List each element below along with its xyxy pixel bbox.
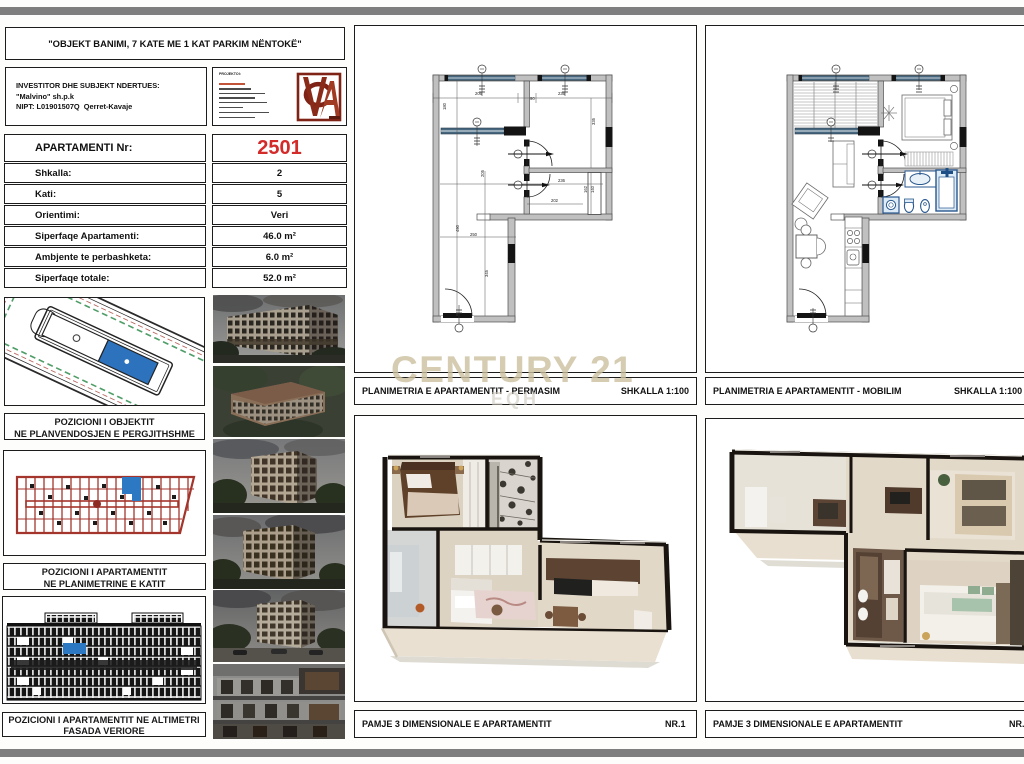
- svg-text:335: 335: [591, 117, 596, 125]
- svg-text:490: 490: [455, 224, 460, 232]
- svg-text:202: 202: [551, 198, 559, 203]
- svg-text:206: 206: [475, 91, 483, 96]
- svg-text:250: 250: [470, 232, 478, 237]
- svg-text:236: 236: [558, 178, 566, 183]
- svg-text:180: 180: [442, 102, 447, 110]
- svg-text:90: 90: [530, 96, 535, 101]
- svg-text:162: 162: [583, 185, 588, 193]
- svg-text:140: 140: [590, 185, 595, 193]
- svg-text:345: 345: [484, 269, 489, 277]
- svg-text:205: 205: [480, 169, 485, 177]
- svg-text:236: 236: [558, 91, 566, 96]
